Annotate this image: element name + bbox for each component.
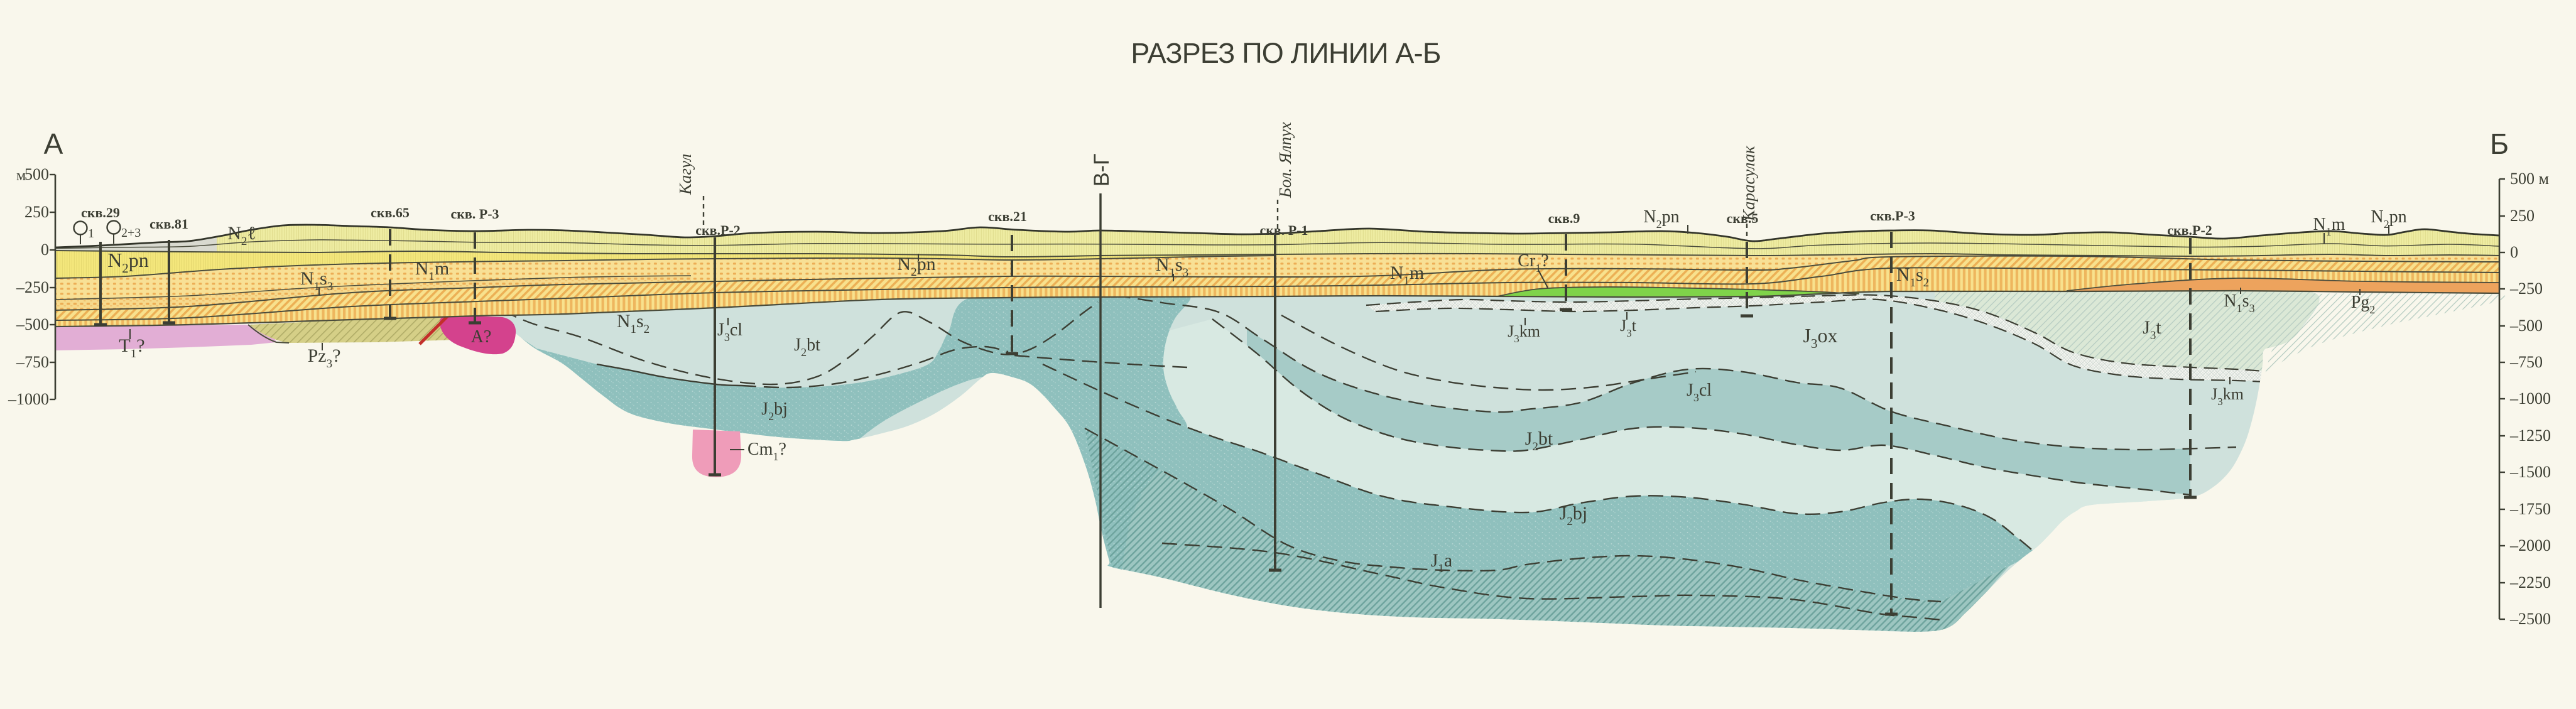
svg-text:–1500: –1500 bbox=[2509, 463, 2551, 481]
svg-text:1: 1 bbox=[88, 227, 94, 241]
svg-text:–500: –500 bbox=[2509, 317, 2543, 335]
svg-text:–750: –750 bbox=[16, 353, 49, 371]
svg-text:скв. Р-3: скв. Р-3 bbox=[450, 206, 499, 222]
svg-text:скв.29: скв.29 bbox=[81, 205, 120, 220]
svg-text:скв.65: скв.65 bbox=[371, 205, 410, 220]
svg-text:скв.21: скв.21 bbox=[988, 208, 1027, 224]
svg-text:250: 250 bbox=[2510, 207, 2535, 225]
svg-text:500: 500 bbox=[24, 165, 49, 183]
svg-text:Б: Б bbox=[2490, 127, 2509, 160]
svg-text:–1250: –1250 bbox=[2509, 426, 2551, 445]
svg-text:0: 0 bbox=[41, 241, 49, 259]
svg-text:–1000: –1000 bbox=[8, 390, 49, 408]
svg-text:–2250: –2250 bbox=[2509, 573, 2551, 592]
svg-text:скв.Р-3: скв.Р-3 bbox=[1870, 208, 1915, 224]
svg-text:РАЗРЕЗ ПО ЛИНИИ А-Б: РАЗРЕЗ ПО ЛИНИИ А-Б bbox=[1131, 37, 1440, 69]
svg-text:500 м: 500 м bbox=[2510, 170, 2549, 188]
svg-text:скв.Р-2: скв.Р-2 bbox=[2167, 222, 2212, 238]
svg-text:скв. Р-1: скв. Р-1 bbox=[1259, 222, 1308, 238]
svg-text:скв.81: скв.81 bbox=[149, 216, 188, 232]
svg-text:–750: –750 bbox=[2509, 353, 2543, 371]
svg-text:250: 250 bbox=[24, 203, 49, 221]
svg-text:А?: А? bbox=[471, 327, 492, 347]
svg-text:м: м bbox=[16, 168, 26, 184]
svg-text:–2500: –2500 bbox=[2509, 610, 2551, 628]
svg-text:Карасулак: Карасулак bbox=[1739, 146, 1758, 222]
svg-text:В-Г: В-Г bbox=[1090, 154, 1114, 187]
svg-text:–500: –500 bbox=[16, 315, 49, 333]
svg-text:скв.Р-2: скв.Р-2 bbox=[695, 222, 741, 238]
svg-text:–250: –250 bbox=[2509, 279, 2543, 298]
svg-text:–1750: –1750 bbox=[2509, 500, 2551, 518]
svg-text:–1000: –1000 bbox=[2509, 389, 2551, 408]
svg-text:–2000: –2000 bbox=[2509, 536, 2551, 555]
svg-text:0: 0 bbox=[2510, 243, 2518, 261]
svg-text:Кагул: Кагул bbox=[676, 154, 695, 195]
svg-text:Бол. Ялпух: Бол. Ялпух bbox=[1276, 122, 1295, 198]
svg-text:А: А bbox=[44, 127, 63, 160]
svg-text:скв.9: скв.9 bbox=[1548, 210, 1580, 226]
svg-text:–250: –250 bbox=[16, 278, 49, 296]
svg-text:2+3: 2+3 bbox=[121, 226, 141, 240]
